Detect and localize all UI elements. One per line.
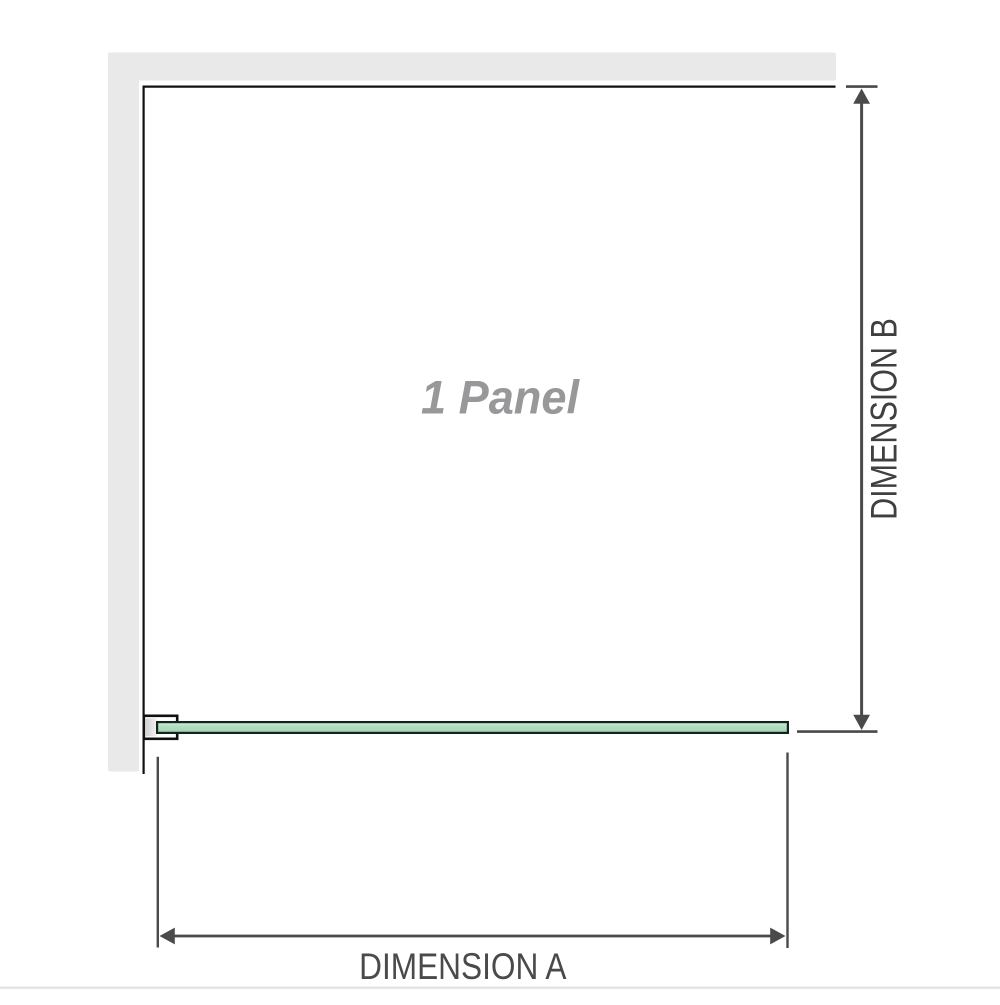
svg-text:DIMENSION B: DIMENSION B [864,318,905,520]
svg-text:DIMENSION A: DIMENSION A [359,947,566,988]
svg-text:1 Panel: 1 Panel [421,371,580,424]
